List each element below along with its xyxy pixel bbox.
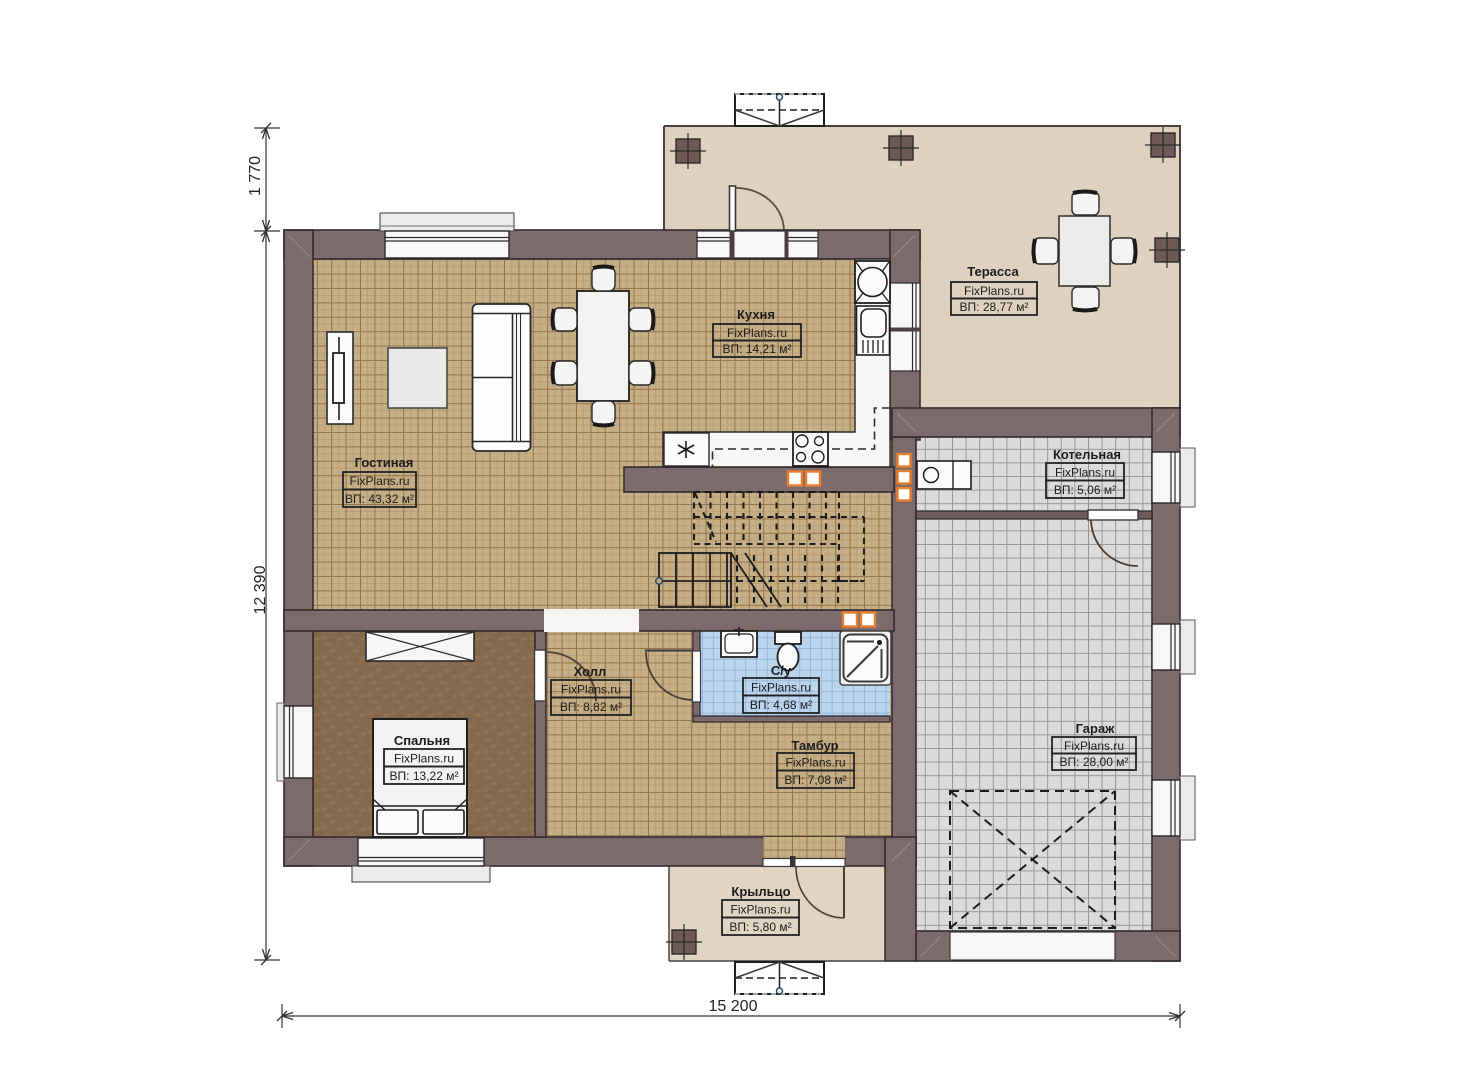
svg-text:Холл: Холл xyxy=(574,664,607,679)
svg-text:FixPlans.ru: FixPlans.ru xyxy=(1064,739,1124,753)
svg-text:FixPlans.ru: FixPlans.ru xyxy=(785,756,845,770)
svg-text:ВП: 28,77 м²: ВП: 28,77 м² xyxy=(960,300,1029,314)
svg-text:Спальня: Спальня xyxy=(394,733,450,748)
svg-text:Тамбур: Тамбур xyxy=(791,738,838,753)
svg-text:12 390: 12 390 xyxy=(252,565,269,614)
svg-text:ВП: 8,82 м²: ВП: 8,82 м² xyxy=(560,700,622,714)
svg-text:FixPlans.ru: FixPlans.ru xyxy=(394,752,454,766)
svg-text:Кухня: Кухня xyxy=(737,307,775,322)
svg-text:FixPlans.ru: FixPlans.ru xyxy=(730,903,790,917)
svg-text:Крыльцо: Крыльцо xyxy=(731,884,790,899)
svg-text:FixPlans.ru: FixPlans.ru xyxy=(349,474,409,488)
svg-text:FixPlans.ru: FixPlans.ru xyxy=(1055,466,1115,480)
svg-text:Котельная: Котельная xyxy=(1053,447,1121,462)
svg-text:Гараж: Гараж xyxy=(1076,721,1116,736)
svg-text:FixPlans.ru: FixPlans.ru xyxy=(727,326,787,340)
svg-text:ВП: 28,00 м²: ВП: 28,00 м² xyxy=(1060,755,1129,769)
svg-text:Терасса: Терасса xyxy=(967,264,1019,279)
svg-text:FixPlans.ru: FixPlans.ru xyxy=(751,681,811,695)
svg-text:С/у: С/у xyxy=(771,663,792,678)
svg-text:ВП: 43,32 м²: ВП: 43,32 м² xyxy=(345,492,414,506)
svg-text:FixPlans.ru: FixPlans.ru xyxy=(964,284,1024,298)
svg-text:ВП: 4,68 м²: ВП: 4,68 м² xyxy=(750,698,812,712)
svg-text:15 200: 15 200 xyxy=(709,998,758,1015)
svg-text:Гостиная: Гостиная xyxy=(355,455,414,470)
svg-text:ВП: 5,80 м²: ВП: 5,80 м² xyxy=(729,920,791,934)
svg-text:ВП: 13,22 м²: ВП: 13,22 м² xyxy=(390,769,459,783)
svg-text:FixPlans.ru: FixPlans.ru xyxy=(561,683,621,697)
svg-text:ВП: 5,06 м²: ВП: 5,06 м² xyxy=(1054,483,1116,497)
svg-text:1 770: 1 770 xyxy=(247,156,264,196)
svg-text:ВП: 14,21 м²: ВП: 14,21 м² xyxy=(723,342,792,356)
svg-text:ВП: 7,08 м²: ВП: 7,08 м² xyxy=(784,773,846,787)
